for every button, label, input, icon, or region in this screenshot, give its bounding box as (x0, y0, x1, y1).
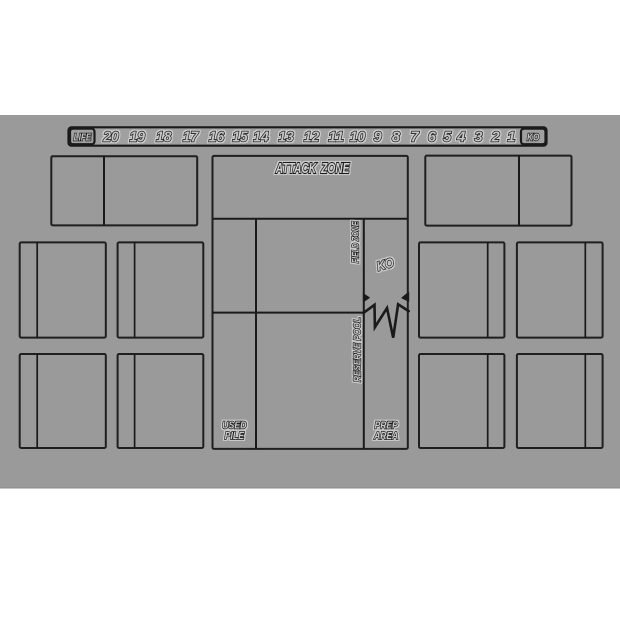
svg-text:17: 17 (183, 129, 199, 146)
svg-text:6: 6 (428, 129, 437, 146)
svg-text:AREA: AREA (373, 431, 398, 442)
svg-text:ATTACK ZONE: ATTACK ZONE (275, 160, 350, 176)
svg-text:4: 4 (456, 129, 466, 146)
svg-text:PILE: PILE (225, 430, 245, 442)
svg-text:12: 12 (304, 129, 320, 146)
svg-text:5: 5 (443, 129, 452, 146)
svg-text:11: 11 (328, 129, 344, 146)
svg-text:18: 18 (156, 129, 172, 146)
svg-text:7: 7 (411, 129, 420, 146)
svg-text:10: 10 (350, 129, 366, 146)
svg-text:15: 15 (232, 129, 248, 146)
svg-text:14: 14 (253, 129, 269, 146)
svg-text:1: 1 (507, 129, 515, 146)
svg-text:LIFE: LIFE (74, 132, 93, 143)
svg-text:PREP: PREP (375, 420, 399, 431)
svg-text:20: 20 (102, 129, 119, 146)
svg-text:19: 19 (130, 129, 146, 146)
svg-text:8: 8 (392, 129, 401, 146)
svg-text:9: 9 (374, 129, 383, 146)
svg-text:RESERVE POOL: RESERVE POOL (352, 317, 363, 382)
svg-text:KO: KO (527, 132, 539, 143)
svg-text:16: 16 (209, 129, 225, 146)
svg-text:13: 13 (278, 129, 294, 146)
svg-text:3: 3 (474, 129, 483, 146)
svg-text:FIELD ZONE: FIELD ZONE (351, 221, 361, 263)
svg-text:2: 2 (491, 129, 501, 146)
